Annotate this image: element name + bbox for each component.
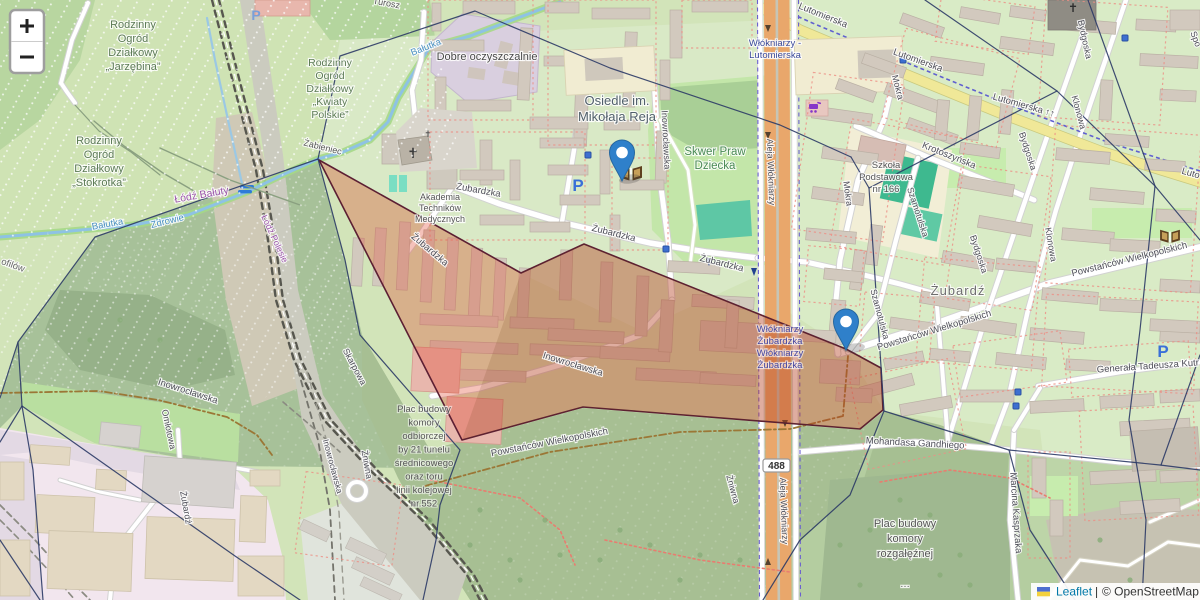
svg-text:linii kolejowej: linii kolejowej [396, 485, 451, 496]
svg-text:Medycznych: Medycznych [415, 214, 465, 224]
svg-text:by 21 tunelu: by 21 tunelu [398, 445, 450, 456]
svg-text:oraz toru: oraz toru [405, 472, 443, 483]
svg-text:Plac budowy: Plac budowy [874, 518, 937, 530]
svg-text:Żubardź: Żubardź [931, 283, 986, 298]
svg-text:P: P [1157, 342, 1168, 361]
svg-text:średnicowego: średnicowego [395, 458, 454, 469]
svg-text:Ogród: Ogród [315, 70, 344, 82]
svg-text:Dobre oczyszczalnie: Dobre oczyszczalnie [437, 51, 538, 63]
svg-text:Ogród: Ogród [84, 149, 115, 161]
svg-text:488: 488 [768, 461, 785, 472]
svg-text:© OpenStreetMap: © OpenStreetMap [1102, 585, 1199, 599]
svg-text:Działkowy: Działkowy [74, 163, 124, 175]
svg-text:Leaflet: Leaflet [1056, 585, 1093, 599]
svg-text:Ogród: Ogród [118, 33, 149, 45]
svg-text:Włókniarzy -: Włókniarzy - [749, 38, 801, 49]
svg-text:P: P [572, 176, 583, 195]
svg-text:Działkowy: Działkowy [306, 83, 354, 95]
svg-text:Osiedle im.: Osiedle im. [584, 93, 649, 108]
svg-text:Techników: Techników [419, 203, 462, 213]
svg-text:Dziecka: Dziecka [695, 160, 737, 172]
svg-text:„Stokrotka”: „Stokrotka” [72, 177, 126, 189]
svg-text:rozgałęźnej: rozgałęźnej [877, 548, 933, 560]
svg-text:Rodzinny: Rodzinny [110, 19, 156, 31]
svg-text:Szkoła: Szkoła [872, 160, 901, 171]
svg-text:Mikołaja Reja: Mikołaja Reja [578, 109, 657, 124]
svg-text:„Kwiaty: „Kwiaty [313, 96, 348, 108]
svg-text:„Jarzębina”: „Jarzębina” [105, 61, 160, 73]
svg-text:Skwer Praw: Skwer Praw [684, 146, 746, 158]
svg-text:Włókniarzy: Włókniarzy [757, 324, 804, 335]
svg-text:Żubardzka: Żubardzka [758, 360, 804, 371]
svg-text:|: | [1095, 585, 1098, 599]
svg-text:✝: ✝ [1068, 1, 1078, 15]
svg-text:Plac budowy: Plac budowy [397, 404, 451, 415]
svg-text:Rodzinny: Rodzinny [308, 57, 353, 69]
svg-text:nr 166: nr 166 [873, 184, 900, 195]
svg-text:odbiorczej: odbiorczej [402, 431, 445, 442]
svg-text:Lutomierska: Lutomierska [749, 50, 801, 61]
svg-text:Włókniarzy: Włókniarzy [757, 348, 804, 359]
svg-text:Żubardzka: Żubardzka [758, 336, 804, 347]
svg-text:Podstawowa: Podstawowa [859, 172, 914, 183]
svg-text:P: P [251, 7, 260, 23]
svg-text:komory: komory [887, 533, 924, 545]
svg-text:Polskie”: Polskie” [311, 109, 349, 121]
svg-text:…: … [900, 579, 910, 590]
svg-text:Rodzinny: Rodzinny [76, 135, 122, 147]
svg-text:Akademia: Akademia [420, 192, 460, 202]
svg-text:Działkowy: Działkowy [108, 47, 158, 59]
svg-text:nr.552: nr.552 [411, 499, 437, 510]
svg-text:komory: komory [408, 418, 439, 429]
